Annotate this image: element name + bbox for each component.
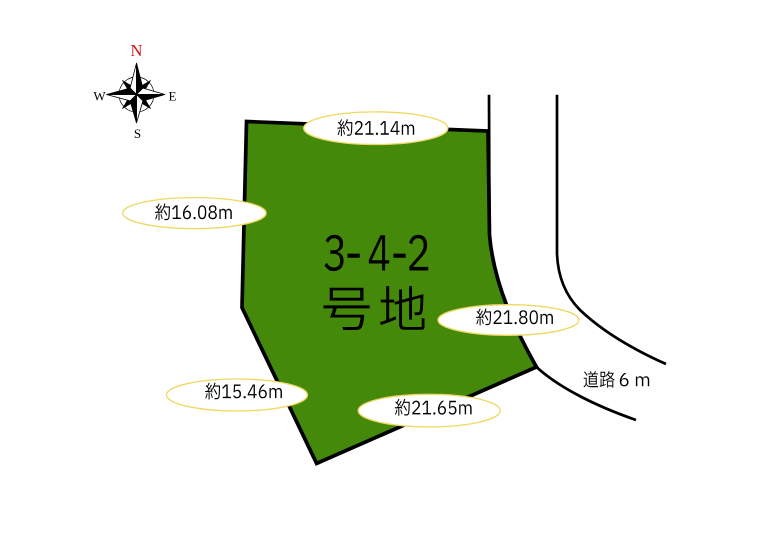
svg-text:S: S xyxy=(134,126,141,141)
svg-text:N: N xyxy=(131,41,143,60)
svg-text:W: W xyxy=(93,89,106,104)
svg-text:E: E xyxy=(169,89,177,104)
